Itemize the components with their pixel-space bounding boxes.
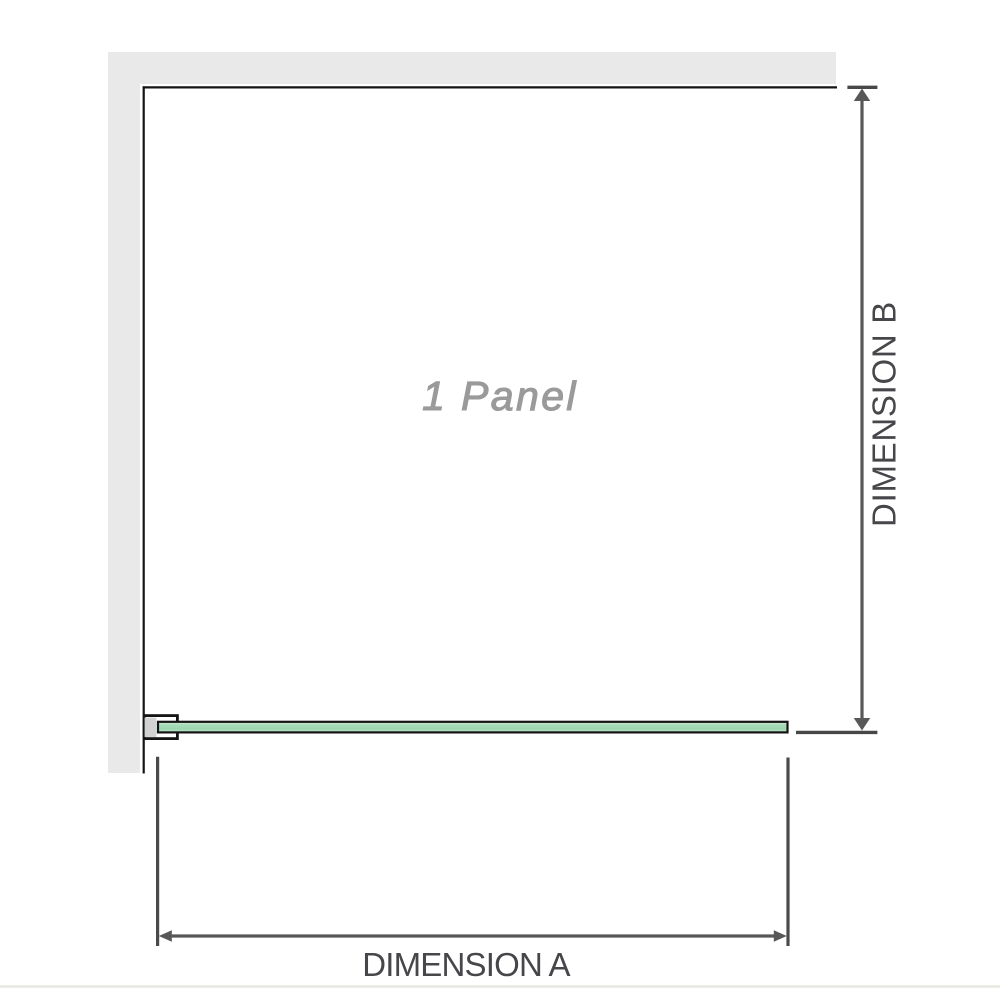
svg-text:DIMENSION B: DIMENSION B bbox=[866, 301, 903, 527]
svg-text:1 Panel: 1 Panel bbox=[422, 373, 578, 419]
svg-text:DIMENSION A: DIMENSION A bbox=[362, 946, 570, 983]
